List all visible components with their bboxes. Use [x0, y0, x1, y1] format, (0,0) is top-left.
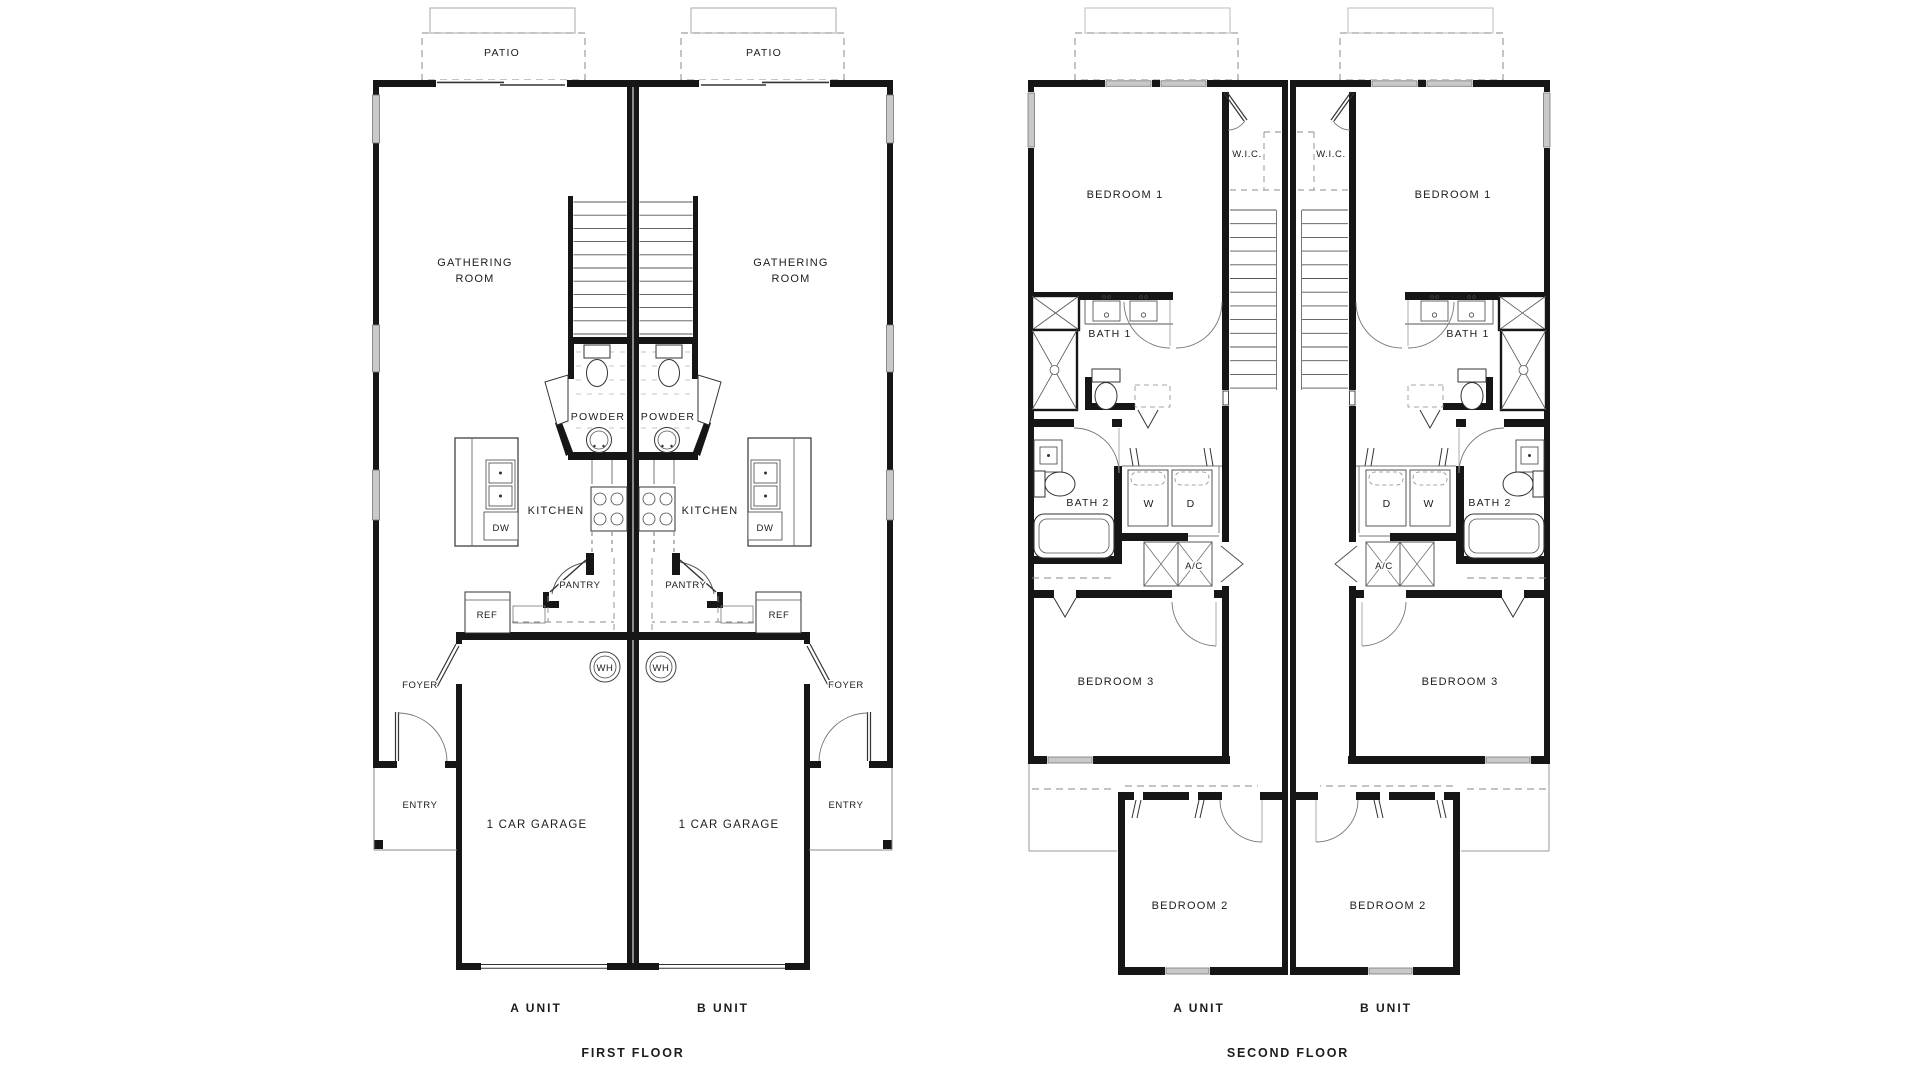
- room-label-gathering-a-line2: ROOM: [455, 273, 494, 285]
- room-label-garage-b: 1 CAR GARAGE: [679, 819, 780, 831]
- room-label-wic-a: W.I.C.: [1232, 149, 1261, 160]
- fixture-label-water-heater-b: WH: [652, 663, 669, 674]
- floor-plan-sheet: PATIO PATIO GATHERING ROOM GATHERING ROO…: [0, 0, 1920, 1080]
- fixture-label-dishwasher-a: DW: [492, 523, 509, 534]
- plan-title-second-floor: SECOND FLOOR: [1227, 1046, 1349, 1060]
- first-floor-labels: PATIO PATIO GATHERING ROOM GATHERING ROO…: [402, 47, 864, 1060]
- room-label-bedroom2-a: BEDROOM 2: [1152, 900, 1229, 912]
- fixture-label-water-heater-a: WH: [596, 663, 613, 674]
- room-label-bath1-b: BATH 1: [1446, 328, 1489, 340]
- second-floor-labels: BEDROOM 1 BEDROOM 1 W.I.C. W.I.C. BATH 1…: [1066, 149, 1511, 1060]
- second-floor-plan: [1027, 8, 1551, 975]
- room-label-entry-b: ENTRY: [828, 800, 863, 811]
- room-label-bath1-a: BATH 1: [1088, 328, 1131, 340]
- room-label-garage-a: 1 CAR GARAGE: [487, 819, 588, 831]
- fixture-label-refrigerator-a: REF: [477, 610, 498, 621]
- room-label-pantry-a: PANTRY: [559, 580, 600, 591]
- room-label-bedroom1-b: BEDROOM 1: [1415, 189, 1492, 201]
- room-label-gathering-b-line2: ROOM: [771, 273, 810, 285]
- room-label-kitchen-b: KITCHEN: [682, 505, 739, 517]
- room-label-bedroom3-a: BEDROOM 3: [1078, 676, 1155, 688]
- room-label-wic-b: W.I.C.: [1316, 149, 1345, 160]
- room-label-entry-a: ENTRY: [402, 800, 437, 811]
- fixture-label-refrigerator-b: REF: [769, 610, 790, 621]
- unit-label-b-second-floor: B UNIT: [1360, 1001, 1412, 1015]
- room-label-kitchen-a: KITCHEN: [528, 505, 585, 517]
- room-label-patio-b: PATIO: [746, 47, 782, 59]
- unit-label-a-second-floor: A UNIT: [1173, 1001, 1225, 1015]
- fixture-label-washer-b: W: [1423, 498, 1434, 510]
- room-label-bath2-a: BATH 2: [1066, 497, 1109, 509]
- unit-label-b-first-floor: B UNIT: [697, 1001, 749, 1015]
- fixture-label-ac-b: A/C: [1375, 561, 1393, 572]
- room-label-patio-a: PATIO: [484, 47, 520, 59]
- fixture-label-ac-a: A/C: [1185, 561, 1203, 572]
- unit-label-a-first-floor: A UNIT: [510, 1001, 562, 1015]
- room-label-gathering-a-line1: GATHERING: [437, 257, 512, 269]
- fixture-label-dishwasher-b: DW: [756, 523, 773, 534]
- room-label-powder-a: POWDER: [571, 411, 625, 423]
- room-label-foyer-a: FOYER: [402, 680, 438, 691]
- room-label-bedroom2-b: BEDROOM 2: [1350, 900, 1427, 912]
- plan-title-first-floor: FIRST FLOOR: [581, 1046, 684, 1060]
- floor-plan-canvas: PATIO PATIO GATHERING ROOM GATHERING ROO…: [0, 0, 1920, 1080]
- room-label-powder-b: POWDER: [641, 411, 695, 423]
- first-floor-plan: [371, 8, 895, 970]
- room-label-bath2-b: BATH 2: [1468, 497, 1511, 509]
- fixture-label-dryer-b: D: [1383, 498, 1392, 510]
- room-label-bedroom1-a: BEDROOM 1: [1087, 189, 1164, 201]
- fixture-label-dryer-a: D: [1187, 498, 1196, 510]
- room-label-foyer-b: FOYER: [828, 680, 864, 691]
- room-label-bedroom3-b: BEDROOM 3: [1422, 676, 1499, 688]
- fixture-label-washer-a: W: [1143, 498, 1154, 510]
- room-label-gathering-b-line1: GATHERING: [753, 257, 828, 269]
- room-label-pantry-b: PANTRY: [665, 580, 706, 591]
